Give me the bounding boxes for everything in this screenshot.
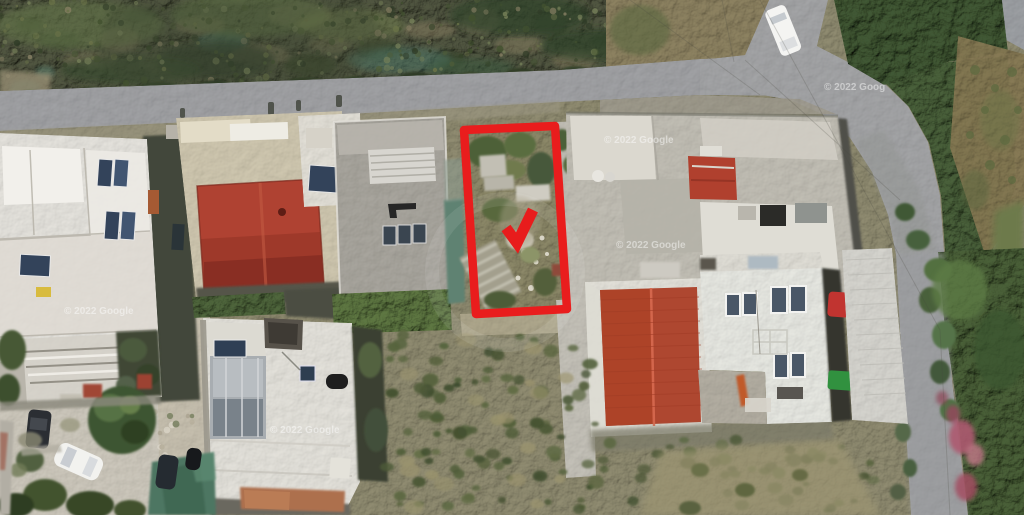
svg-text:© 2022 Goog: © 2022 Goog — [824, 82, 885, 93]
svg-text:© 2022 Google: © 2022 Google — [604, 135, 674, 146]
svg-text:© 2022 Google: © 2022 Google — [270, 425, 340, 436]
svg-text:© 2022 Google: © 2022 Google — [64, 306, 134, 317]
svg-text:© 2022 Google: © 2022 Google — [616, 240, 686, 251]
